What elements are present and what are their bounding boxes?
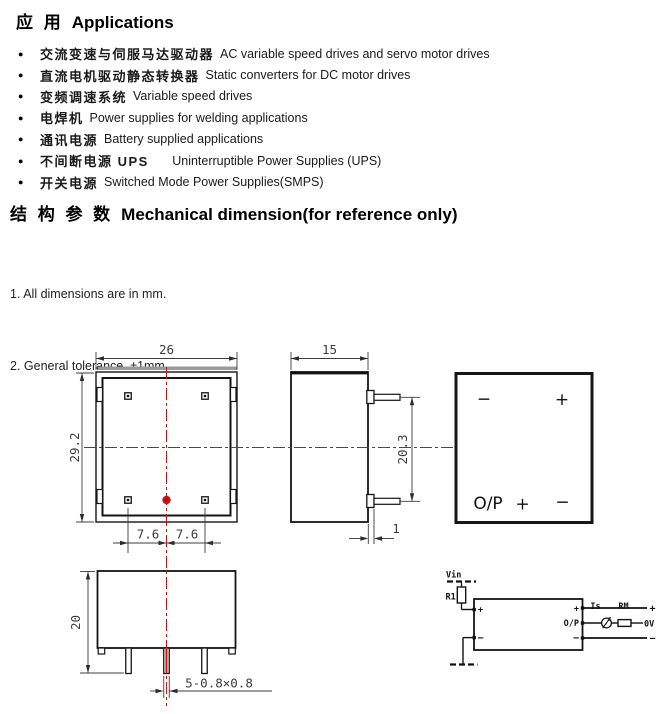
application-item-en: Uninterruptible Power Supplies (UPS): [155, 154, 382, 168]
out-minus-label: −: [649, 634, 655, 645]
application-item: ●通讯电源Battery supplied applications: [0, 129, 672, 150]
box-op-label: O/P: [564, 619, 579, 629]
application-item: ●不间断电源 UPS Uninterruptible Power Supplie…: [0, 150, 672, 171]
application-item-zh: 交流变速与伺服马达驱动器: [40, 44, 214, 63]
application-item-en: Power supplies for welding applications: [90, 111, 308, 125]
datasheet-page: { "applications": { "title_zh": "应 用", "…: [0, 0, 672, 714]
side-pin-span-dimension: 20.3: [395, 397, 420, 501]
bottom-pin-size-dimension: 5-0.8×0.8: [150, 676, 272, 699]
dim-side-depth-label: 15: [322, 342, 337, 357]
dim-bottom-height-label: 20: [68, 615, 83, 630]
side-view: 15 20.3 1: [291, 342, 420, 544]
applications-title-zh: 应 用: [16, 13, 64, 32]
applications-list: ●交流变速与伺服马达驱动器AC variable speed drives an…: [0, 43, 672, 193]
edge-clip: [97, 388, 103, 402]
face-top-right-label: +: [555, 390, 569, 410]
dim-front-height-label: 29.2: [67, 432, 82, 462]
r1-resistor: [457, 587, 465, 603]
application-item-en: AC variable speed drives and servo motor…: [220, 47, 490, 61]
application-item-en: Variable speed drives: [133, 89, 252, 103]
dim-pin-pitch-right-label: 7.6: [176, 527, 199, 542]
bullet-icon: ●: [18, 177, 40, 187]
application-item-en: Switched Mode Power Supplies(SMPS): [104, 175, 324, 189]
mechanical-title: 结 构 参 数Mechanical dimension(for referenc…: [10, 200, 672, 225]
r1-label: R1: [446, 593, 456, 603]
rm-resistor: [618, 620, 631, 627]
note-line: 1. All dimensions are in mm.: [10, 282, 672, 306]
bullet-icon: ●: [18, 113, 40, 123]
application-item-zh: 通讯电源: [40, 130, 98, 149]
dim-pin-size-label: 5-0.8×0.8: [185, 676, 253, 691]
application-item: ●直流电机驱动静态转换器Static converters for DC mot…: [0, 64, 672, 85]
applications-title: 应 用Applications: [16, 8, 672, 33]
face-bottom-center-label: +: [515, 495, 529, 515]
vin-label: Vin: [446, 570, 461, 581]
application-item: ●开关电源Switched Mode Power Supplies(SMPS): [0, 171, 672, 192]
applications-title-en: Applications: [72, 13, 174, 32]
rm-label: RM: [618, 602, 628, 612]
face-bottom-right-label: −: [555, 493, 569, 513]
mechanical-title-zh: 结 构 参 数: [10, 205, 113, 224]
application-item-zh: 变频调速系统: [40, 87, 127, 106]
face-op-label: O/P: [473, 494, 502, 514]
bullet-icon: ●: [18, 134, 40, 144]
application-item-zh: 直流电机驱动静态转换器: [40, 66, 200, 85]
mechanical-title-en: Mechanical dimension(for reference only): [121, 205, 457, 224]
corner-tab: [98, 648, 105, 654]
dim-side-pin-offset-label: 1: [392, 521, 400, 536]
bullet-icon: ●: [18, 70, 40, 80]
node-dot: [473, 608, 476, 611]
bullet-icon: ●: [18, 156, 40, 166]
box-right-minus-label: −: [573, 633, 579, 644]
zero-v-label: 0V: [644, 620, 654, 630]
application-item-en: Battery supplied applications: [104, 132, 263, 146]
out-plus-label: +: [649, 604, 655, 615]
box-right-plus-label: +: [574, 605, 579, 615]
application-item: ●变频调速系统Variable speed drives: [0, 86, 672, 107]
edge-clip: [97, 490, 103, 504]
dim-pin-pitch-left-label: 7.6: [137, 527, 160, 542]
corner-tab: [229, 648, 236, 654]
edge-clip: [231, 490, 237, 504]
dim-front-width-label: 26: [159, 342, 174, 357]
bullet-icon: ●: [18, 49, 40, 59]
mechanical-drawing: 26 29.2 7.6 7.6: [0, 330, 672, 714]
face-top-left-label: −: [477, 390, 491, 410]
bottom-view: 20 5-0.8×0.8: [68, 571, 272, 698]
application-item-zh: 电焊机: [40, 108, 84, 127]
edge-clip: [231, 388, 237, 402]
is-label: Is: [590, 602, 600, 612]
application-item: ●电焊机Power supplies for welding applicati…: [0, 107, 672, 128]
face-view: − + O/P + −: [456, 374, 592, 523]
connection-schematic: Vin R1 + − + O/P − + Is RM 0V −: [446, 570, 656, 665]
box-left-plus-label: +: [478, 606, 483, 616]
front-width-dimension: 26: [96, 342, 237, 370]
side-depth-dimension: 15: [291, 342, 368, 370]
application-item-en: Static converters for DC motor drives: [206, 68, 411, 82]
application-item: ●交流变速与伺服马达驱动器AC variable speed drives an…: [0, 43, 672, 64]
front-top-shadow: [98, 367, 237, 371]
dim-side-pin-span-label: 20.3: [395, 434, 410, 464]
application-item-zh: 不间断电源 UPS: [40, 151, 149, 170]
bullet-icon: ●: [18, 91, 40, 101]
application-item-zh: 开关电源: [40, 173, 98, 192]
box-left-minus-label: −: [478, 633, 484, 644]
